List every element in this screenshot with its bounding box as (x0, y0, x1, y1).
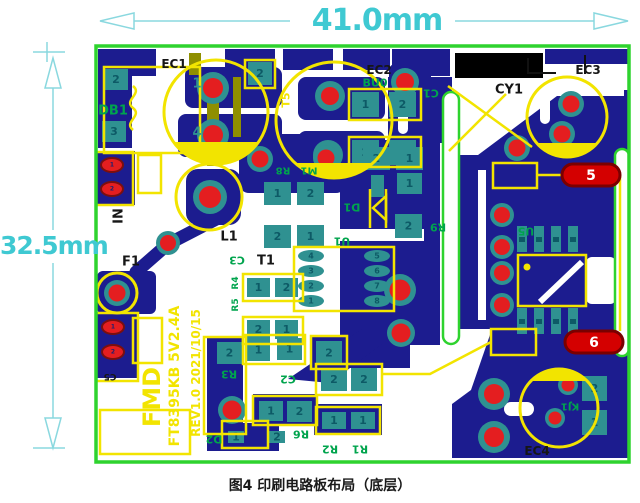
svg-text:1: 1 (307, 230, 315, 243)
smd-pad: 1 (228, 431, 244, 444)
figure-pcb-layout: 2321221122121121221211222121112211212432… (0, 0, 640, 503)
smd-pad: 1 (247, 339, 270, 361)
through-hole-pad (391, 68, 419, 96)
svg-text:2: 2 (307, 187, 315, 200)
smd-pad (371, 175, 384, 197)
t5-label: T5 (280, 92, 293, 107)
smd-pad: 1 (352, 92, 379, 117)
d1-label: D1 (344, 201, 361, 214)
svg-text:2: 2 (112, 73, 120, 86)
r4-label: R4 (231, 276, 241, 289)
through-hole-pad (504, 135, 530, 161)
through-hole-pad (490, 293, 514, 317)
revision-text: REV1.0 2021/10/15 (189, 309, 203, 437)
ic-pin-pad: 4 (298, 250, 324, 262)
through-hole-pad (315, 81, 345, 111)
svg-text:2: 2 (283, 281, 291, 294)
ic-pin-pad: 8 (364, 295, 390, 307)
connector-pad: 1 (102, 320, 124, 334)
sop-pad (568, 226, 578, 252)
smd-pad: 1 (247, 278, 270, 297)
smd-pad: 2 (269, 431, 285, 444)
r5-label: R5 (231, 298, 241, 311)
through-hole-pad (490, 261, 514, 285)
svg-text:2: 2 (405, 220, 413, 233)
through-hole-pad (156, 231, 180, 255)
sop-pad (551, 308, 561, 334)
svg-text:1: 1 (110, 162, 114, 169)
u5-label: U5 (518, 225, 535, 238)
sop-pad (534, 226, 544, 252)
d2-label: D2 (206, 433, 223, 446)
ic-pin-pad: 7 (364, 280, 390, 292)
m1-label: M1 (301, 165, 318, 176)
pad6-number: 6 (589, 335, 599, 351)
svg-text:6: 6 (374, 267, 380, 276)
svg-text:1: 1 (255, 281, 263, 294)
smd-pad: 2 (316, 341, 342, 365)
height-arrow-top (45, 58, 61, 88)
smd-pad: 3 (102, 121, 126, 142)
in-label: IN (112, 208, 127, 224)
smd-pad: 1 (322, 412, 346, 429)
ec1-label: EC1 (161, 57, 186, 71)
svg-text:1: 1 (362, 98, 370, 111)
kj1-label: KJ1 (561, 401, 579, 412)
ic-pin-pad: 6 (364, 265, 390, 277)
svg-text:1: 1 (267, 405, 275, 418)
model-text: FT8395KB 5V2.4A (167, 305, 183, 446)
svg-text:2: 2 (273, 431, 281, 444)
r1-label: R1 (352, 443, 368, 456)
smd-pad: 1 (264, 182, 291, 205)
isolation-slot (443, 92, 459, 344)
svg-text:1: 1 (274, 187, 282, 200)
u5-pin1-dot (524, 264, 531, 271)
c5-label: C5 (104, 371, 117, 381)
db1-label: DB1 (98, 104, 128, 119)
ec1-pin4: 4 (192, 126, 201, 141)
svg-text:2: 2 (325, 347, 333, 360)
cy1-label: CY1 (495, 83, 523, 98)
r3-label: R3 (221, 368, 237, 381)
ec3-label: EC3 (575, 63, 600, 77)
smd-pad: 2 (217, 342, 242, 364)
r9-label: R9 (430, 221, 446, 234)
pad5-number: 5 (586, 168, 596, 184)
through-hole-pad (387, 319, 415, 347)
smd-pad: 2 (104, 69, 128, 90)
through-hole-pad (478, 378, 510, 410)
connector-pad: 1 (101, 158, 123, 172)
through-hole-pad (558, 91, 584, 117)
width-arrow-right (594, 13, 628, 29)
ic-pin-pad: 5 (364, 250, 390, 262)
smd-pad: 2 (287, 401, 312, 422)
through-hole-pad (490, 235, 514, 259)
svg-text:1: 1 (406, 177, 414, 190)
svg-text:1: 1 (308, 297, 314, 306)
svg-text:5: 5 (374, 252, 380, 261)
figure-caption: 图4 印刷电路板布局（底层） (0, 475, 640, 495)
svg-text:2: 2 (274, 230, 282, 243)
u1-label: U1 (334, 235, 351, 248)
through-hole-pad (478, 421, 510, 453)
svg-text:1: 1 (406, 152, 414, 165)
ec4-label: EC4 (524, 444, 549, 458)
svg-text:1: 1 (359, 414, 367, 427)
through-hole-pad (193, 180, 227, 214)
smd-pad: 1 (397, 173, 422, 194)
svg-text:2: 2 (296, 405, 304, 418)
connector-pad: 2 (102, 345, 124, 359)
svg-text:2: 2 (111, 349, 115, 356)
svg-text:2: 2 (110, 186, 114, 193)
black-component-bar (455, 53, 543, 78)
ec2-label: EC2 (366, 63, 391, 77)
t1-label: T1 (257, 254, 275, 269)
smd-pad: 1 (259, 401, 283, 421)
svg-text:4: 4 (308, 252, 314, 261)
c2-label: C2 (280, 373, 296, 386)
svg-text:1: 1 (111, 324, 115, 331)
through-hole-pad (104, 280, 130, 306)
width-dimension-label: 41.0mm (292, 3, 462, 38)
r2-label: R2 (322, 443, 338, 456)
smd-pad: 1 (277, 338, 302, 360)
svg-text:3: 3 (308, 267, 314, 276)
r6-label: R6 (293, 428, 309, 441)
svg-text:2: 2 (360, 373, 368, 386)
brand-text: FMD (138, 367, 166, 427)
through-hole-pad (490, 203, 514, 227)
r8-label: R8 (276, 165, 291, 176)
height-arrow-bottom (45, 418, 61, 448)
connector-pad: 2 (101, 182, 123, 196)
svg-text:2: 2 (330, 373, 338, 386)
f1-label: F1 (122, 255, 140, 270)
c1-label: C1 (423, 87, 439, 100)
through-hole-pad (197, 72, 229, 104)
svg-text:1: 1 (232, 431, 240, 444)
smd-pad: 1 (297, 225, 324, 248)
smd-pad: 2 (321, 368, 347, 391)
svg-text:2: 2 (308, 282, 314, 291)
svg-text:7: 7 (374, 282, 380, 291)
svg-text:2: 2 (226, 347, 234, 360)
smd-pad: 1 (351, 412, 375, 429)
svg-text:8: 8 (374, 297, 380, 306)
svg-text:1: 1 (330, 414, 338, 427)
height-dimension-label: 32.5mm (0, 231, 106, 260)
bu0-label: BU0 (363, 77, 388, 90)
svg-text:1: 1 (255, 344, 263, 357)
width-arrow-left (100, 13, 134, 29)
smd-pad: 2 (351, 368, 377, 391)
sop-pad (551, 226, 561, 252)
svg-text:3: 3 (110, 125, 118, 138)
svg-text:2: 2 (399, 98, 407, 111)
c3-label: C3 (229, 254, 245, 267)
smd-pad: 2 (297, 182, 324, 205)
smd-pad: 2 (264, 225, 291, 248)
smd-pad: 2 (395, 214, 422, 238)
l1-label: L1 (220, 230, 237, 245)
ec1-pin1: 1 (192, 77, 201, 92)
